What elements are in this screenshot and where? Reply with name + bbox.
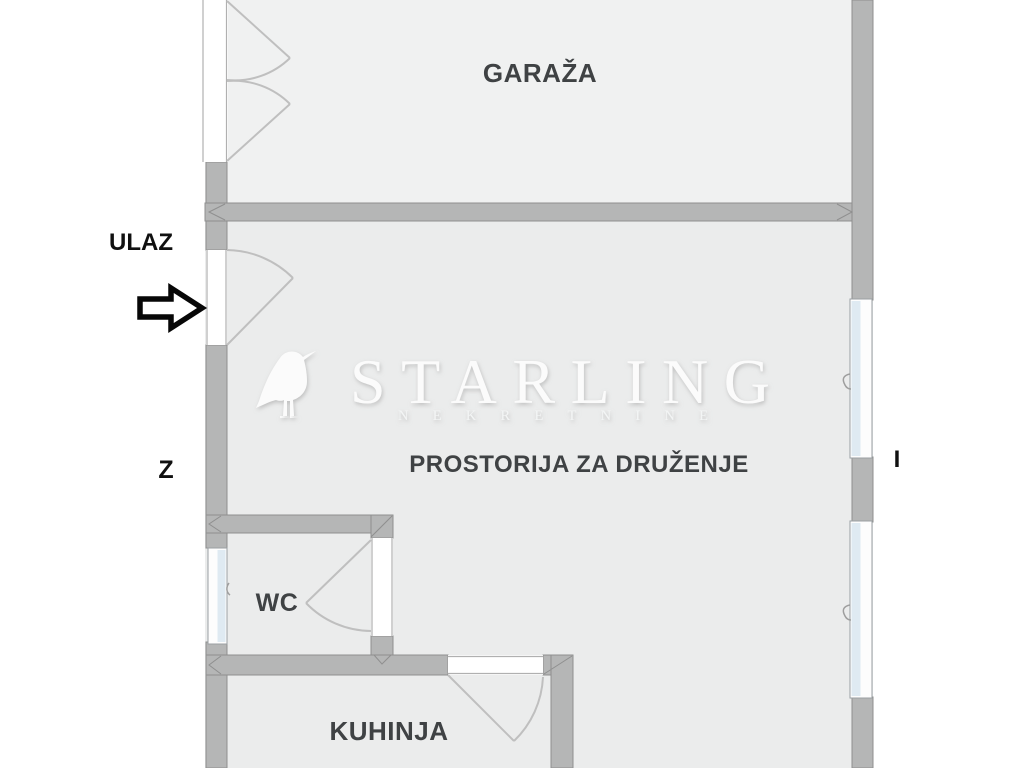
wc-window [208, 548, 230, 644]
room-label-kitchen: KUHINJA [329, 716, 448, 746]
room-label-wc: WC [256, 589, 299, 617]
right-wall-segment [852, 697, 873, 768]
garage-floor [205, 0, 873, 203]
entrance-label: ULAZ [109, 229, 173, 256]
wc-top-wall [206, 515, 393, 533]
room-label-living: PROSTORIJA ZA DRUŽENJE [409, 450, 749, 478]
garage-door-opening [202, 0, 228, 162]
compass-west-label: Z [158, 456, 173, 484]
right-wall-segment [852, 457, 873, 522]
kitchen-right-wall [551, 655, 573, 768]
room-label-garage: GARAŽA [483, 58, 597, 88]
entrance-door-opening [206, 250, 227, 345]
kitchen-top-wall [206, 655, 448, 675]
right-wall-segment [852, 0, 873, 300]
wc-door-opening [371, 538, 393, 636]
kitchen-door-opening [448, 655, 543, 675]
garage-divider-wall [205, 203, 873, 221]
compass-east-label: I [894, 446, 901, 473]
floor-plan: STARLING NEKRETNINE GARAŽA PROSTORIJA ZA… [0, 0, 1024, 768]
interior-floor [205, 203, 873, 768]
